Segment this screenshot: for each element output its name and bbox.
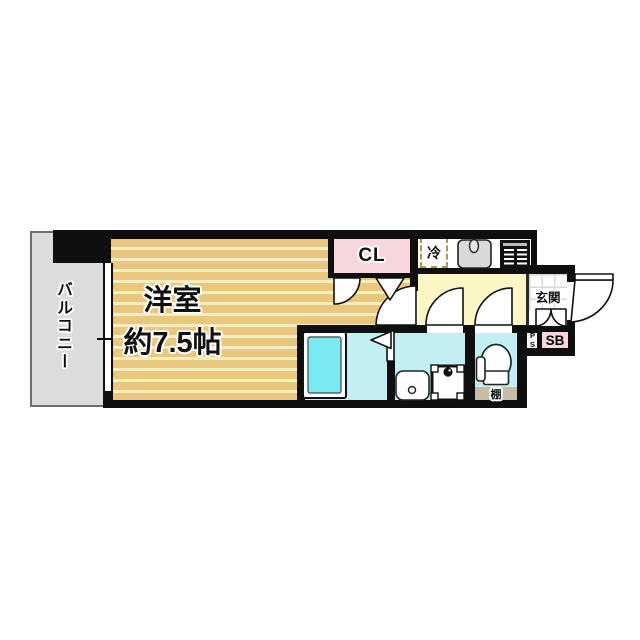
toilet-shelf-label: 棚 xyxy=(475,387,517,400)
refrigerator-label: 冷 xyxy=(420,239,448,267)
washing-machine-pan xyxy=(431,365,465,400)
shoebox-label: SB xyxy=(542,332,568,348)
front-door-swing xyxy=(571,280,613,322)
kitchen-sink xyxy=(458,240,491,269)
main-room-size-label: 約7.5帖 xyxy=(80,319,265,361)
balcony-label: バルコニー xyxy=(50,266,74,386)
bath-door-triangle xyxy=(371,332,391,349)
floor-plan: バルコニー 洋室 約7.5帖 CL 冷 玄関 SB PS 棚 xyxy=(0,0,640,640)
washroom-door-swing xyxy=(426,288,463,325)
front-door-leaf xyxy=(575,274,613,280)
toilet xyxy=(477,345,512,385)
bathtub xyxy=(303,332,346,398)
shoebox-door-right-swing xyxy=(551,309,566,326)
closet-door-swing xyxy=(334,278,360,304)
pipe-space-label: PS xyxy=(527,331,537,349)
washbasin xyxy=(396,371,429,400)
shoebox-door-left-swing xyxy=(536,309,551,326)
entrance-label: 玄関 xyxy=(527,288,569,305)
closet-label: CL xyxy=(334,243,410,269)
main-room-label: 洋室 xyxy=(80,277,265,319)
toilet-door-swing xyxy=(475,288,512,325)
